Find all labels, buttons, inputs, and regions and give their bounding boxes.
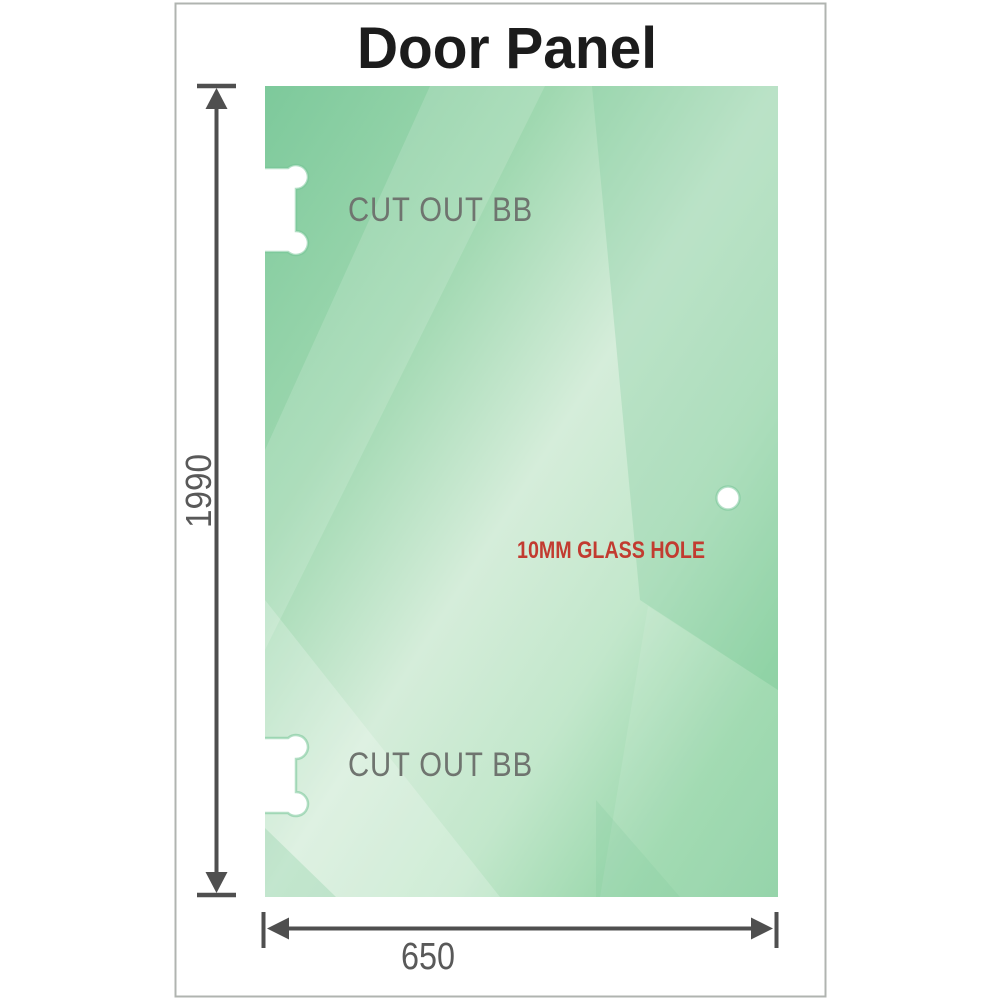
cutout-top-label: CUT OUT BB (348, 191, 533, 229)
glass-hole (717, 487, 740, 510)
drawing-canvas: Door Panel CUT OUT BB CUT OUT BB (0, 0, 1000, 1000)
cutout-bottom-label: CUT OUT BB (348, 746, 533, 784)
page-title: Door Panel (357, 16, 657, 81)
glass-hole-label: 10MM GLASS HOLE (517, 537, 705, 564)
glass-panel: CUT OUT BB CUT OUT BB 10MM GLASS HOLE (252, 86, 778, 897)
height-dimension-label: 1990 (178, 454, 219, 528)
width-dimension-label: 650 (401, 936, 455, 978)
door-panel-diagram: Door Panel CUT OUT BB CUT OUT BB (0, 0, 1000, 1000)
